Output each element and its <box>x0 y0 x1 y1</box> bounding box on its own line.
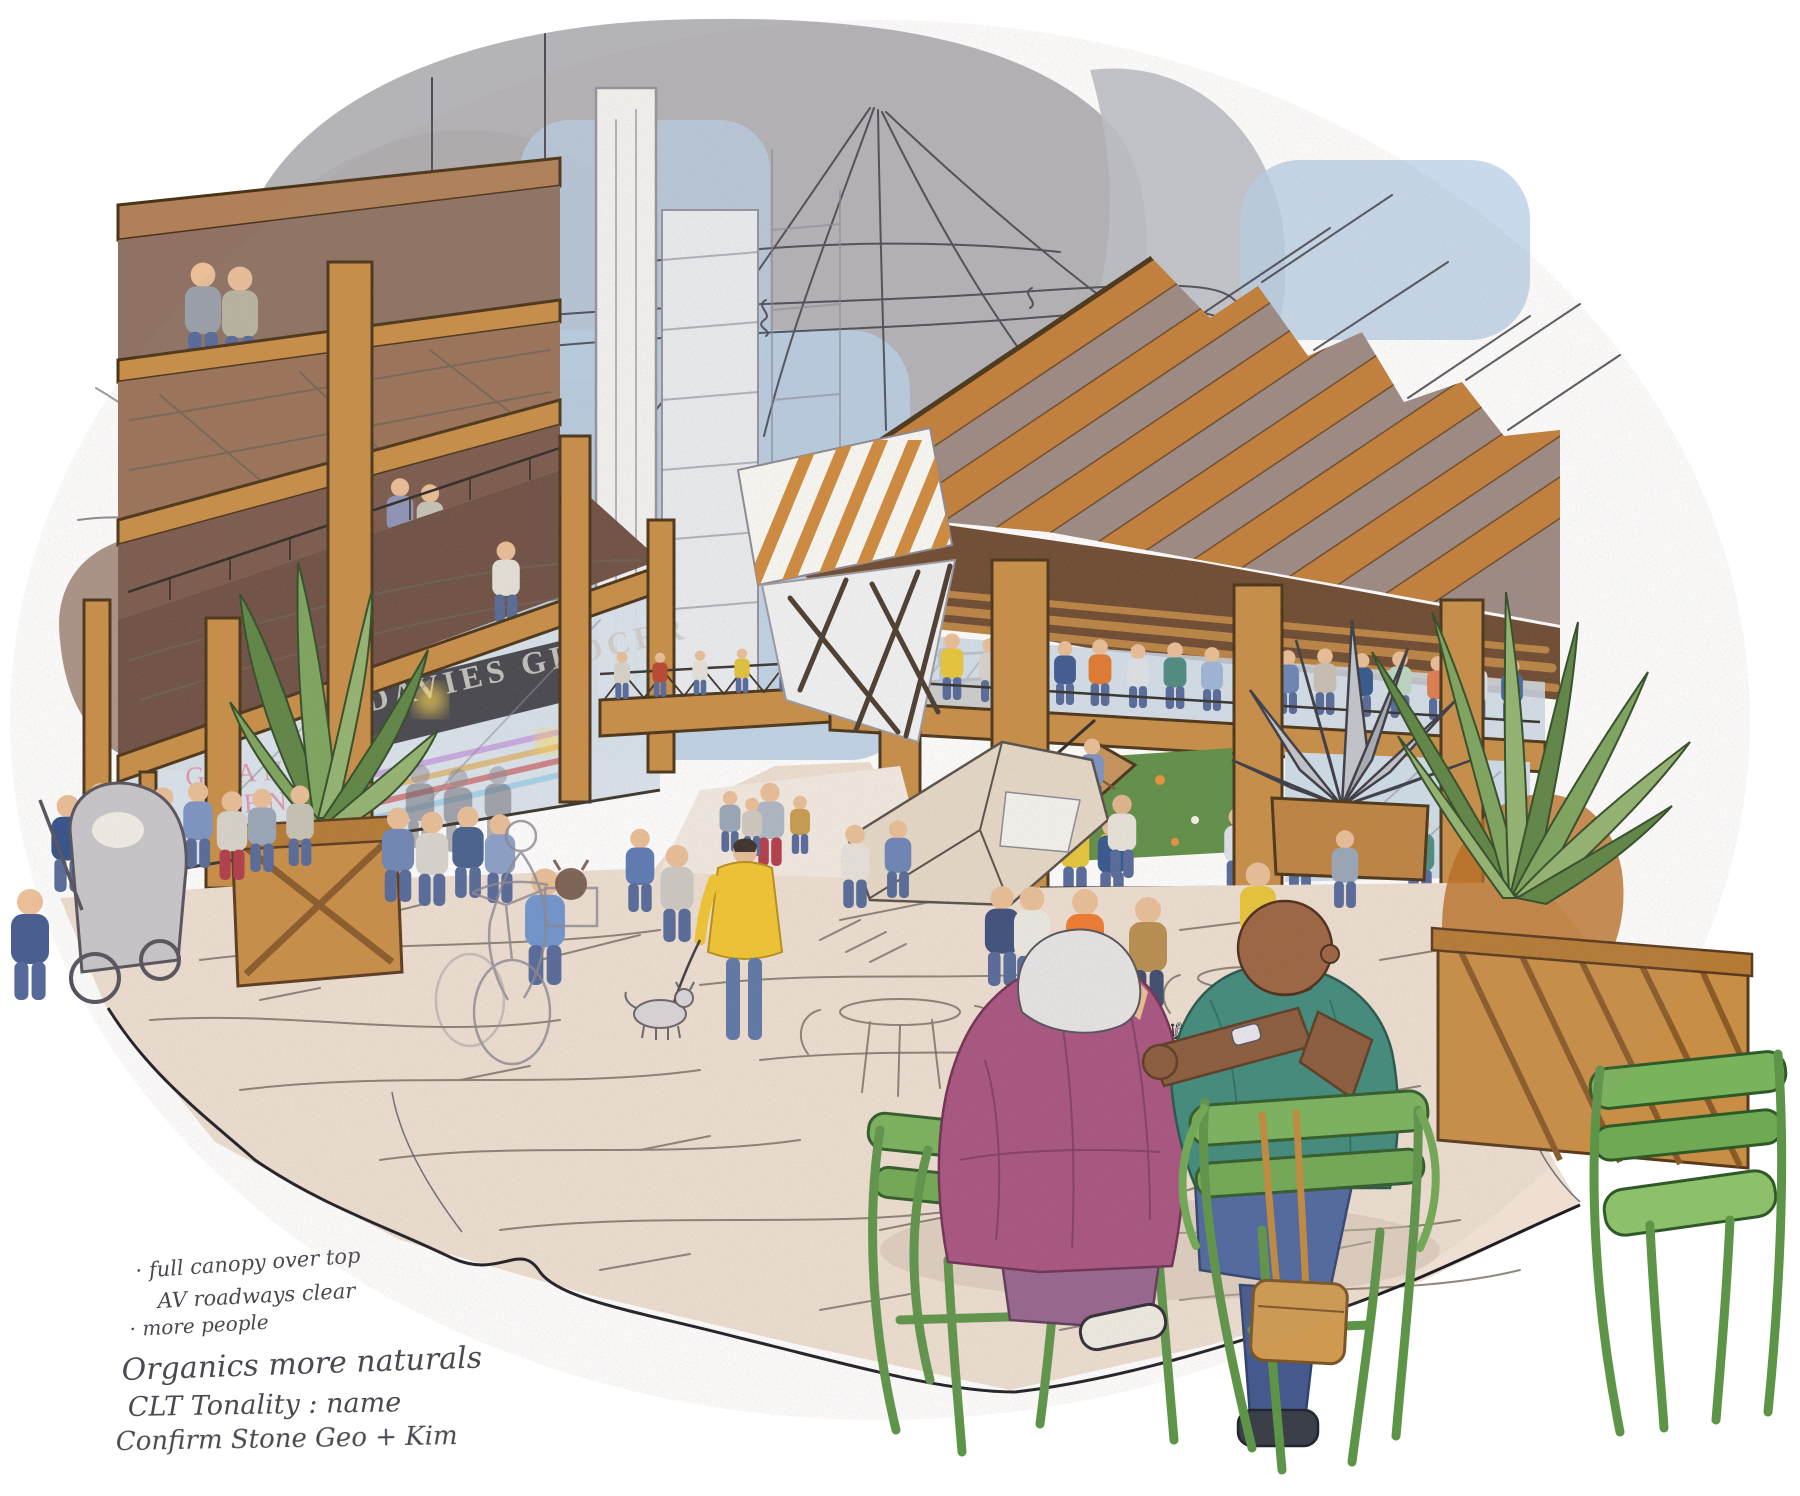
note-line: · more people <box>129 1310 269 1341</box>
note-line: Confirm Stone Geo + Kim <box>116 1421 458 1457</box>
note-line: Organics more naturals <box>121 1340 483 1388</box>
paper-grain <box>10 20 1750 1420</box>
artwork-canvas: DAVIES GROCER GRAND OPENING <box>0 0 1800 1496</box>
note-line: CLT Tonality : name <box>128 1387 402 1423</box>
illustration: DAVIES GROCER GRAND OPENING <box>0 0 1800 1496</box>
note-line: AV roadways clear <box>155 1279 358 1314</box>
